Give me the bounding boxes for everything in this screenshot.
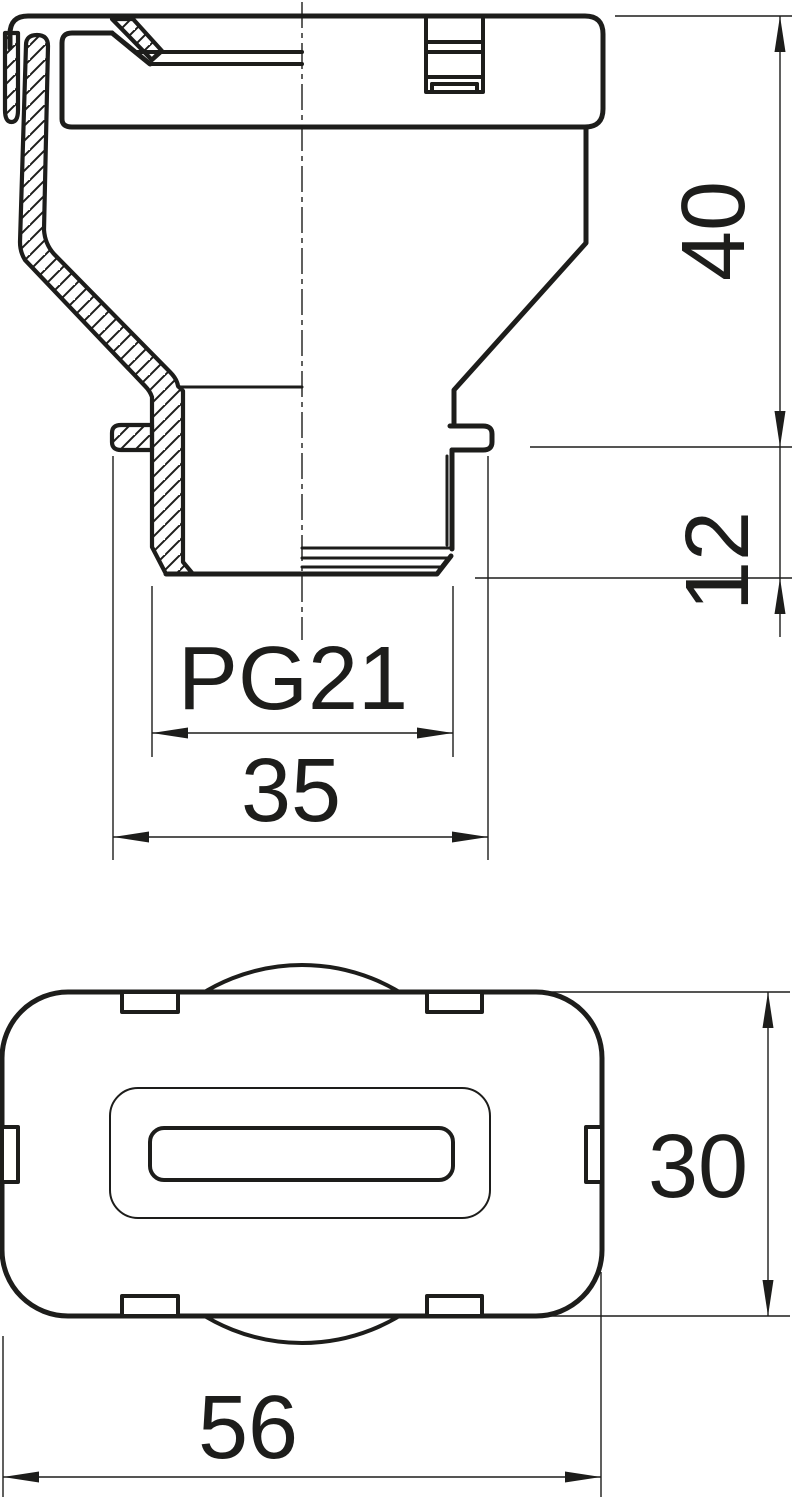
dimension-thread-length: 12 xyxy=(475,447,792,637)
dim-upper-height-label: 40 xyxy=(664,181,764,281)
arrowhead-up xyxy=(775,16,786,52)
latch-notch-bottom-right xyxy=(427,1296,482,1316)
arrowhead-right xyxy=(565,1472,601,1483)
latch-notch-top-right xyxy=(427,992,482,1012)
technical-drawing-canvas: 40 12 PG21 35 xyxy=(0,0,801,1500)
thread-neck xyxy=(166,450,452,574)
side-view-half-section xyxy=(5,2,603,640)
arrowhead-down xyxy=(775,411,786,447)
body-outline xyxy=(2,992,602,1316)
latch-notch-bottom-left xyxy=(122,1296,178,1316)
arrowhead-left xyxy=(152,728,188,739)
flange-elevation xyxy=(450,426,492,450)
arrowhead-down xyxy=(763,1280,774,1316)
dimension-upper-height: 40 xyxy=(530,16,792,447)
dim-body-width-label: 56 xyxy=(198,1378,298,1478)
arrowhead-up-outside xyxy=(775,578,786,614)
cap-outline xyxy=(10,16,603,127)
skirt-funnel-wall-section xyxy=(20,35,193,574)
latch-notch-right xyxy=(586,1127,602,1182)
arrowhead-left xyxy=(3,1472,39,1483)
bayonet-slot-elevation xyxy=(426,19,483,92)
dim-body-height-label: 30 xyxy=(648,1117,748,1217)
dim-flange-diameter-label: 35 xyxy=(241,741,341,841)
arrowhead-left xyxy=(113,832,149,843)
arrowhead-up xyxy=(763,992,774,1028)
funnel-silhouette xyxy=(454,129,586,426)
flange-tab-section xyxy=(112,425,152,450)
outer-seal-lip-section xyxy=(5,33,18,122)
dim-thread-length-label: 12 xyxy=(668,511,768,611)
latch-notch-left xyxy=(2,1127,18,1182)
arrowhead-right xyxy=(417,728,453,739)
arrowhead-right xyxy=(452,832,488,843)
bottom-view xyxy=(2,965,602,1343)
thread-size-label: PG21 xyxy=(178,629,408,729)
latch-notch-top-left xyxy=(122,992,178,1012)
